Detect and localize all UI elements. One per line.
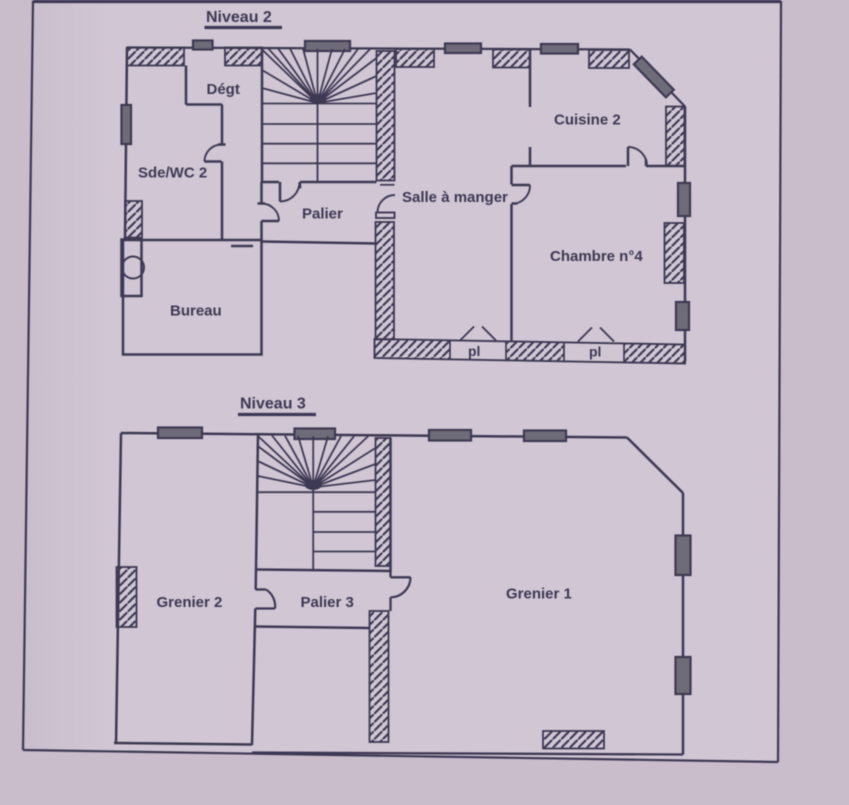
svg-text:Palier 3: Palier 3 xyxy=(301,594,354,611)
svg-text:Niveau 2: Niveau 2 xyxy=(206,9,272,26)
svg-text:Salle à manger: Salle à manger xyxy=(402,189,508,206)
svg-text:Dégt: Dégt xyxy=(207,81,240,98)
svg-text:Cuisine 2: Cuisine 2 xyxy=(554,112,621,129)
svg-text:Grenier 1: Grenier 1 xyxy=(506,586,572,603)
svg-text:pl: pl xyxy=(589,344,601,360)
svg-text:Chambre n°4: Chambre n°4 xyxy=(550,248,643,265)
svg-text:Niveau 3: Niveau 3 xyxy=(240,396,306,413)
svg-text:Grenier 2: Grenier 2 xyxy=(157,594,223,611)
svg-text:Sde/WC 2: Sde/WC 2 xyxy=(138,165,207,182)
svg-text:pl: pl xyxy=(468,343,480,359)
svg-text:Palier: Palier xyxy=(302,206,343,223)
svg-text:Bureau: Bureau xyxy=(170,303,222,320)
